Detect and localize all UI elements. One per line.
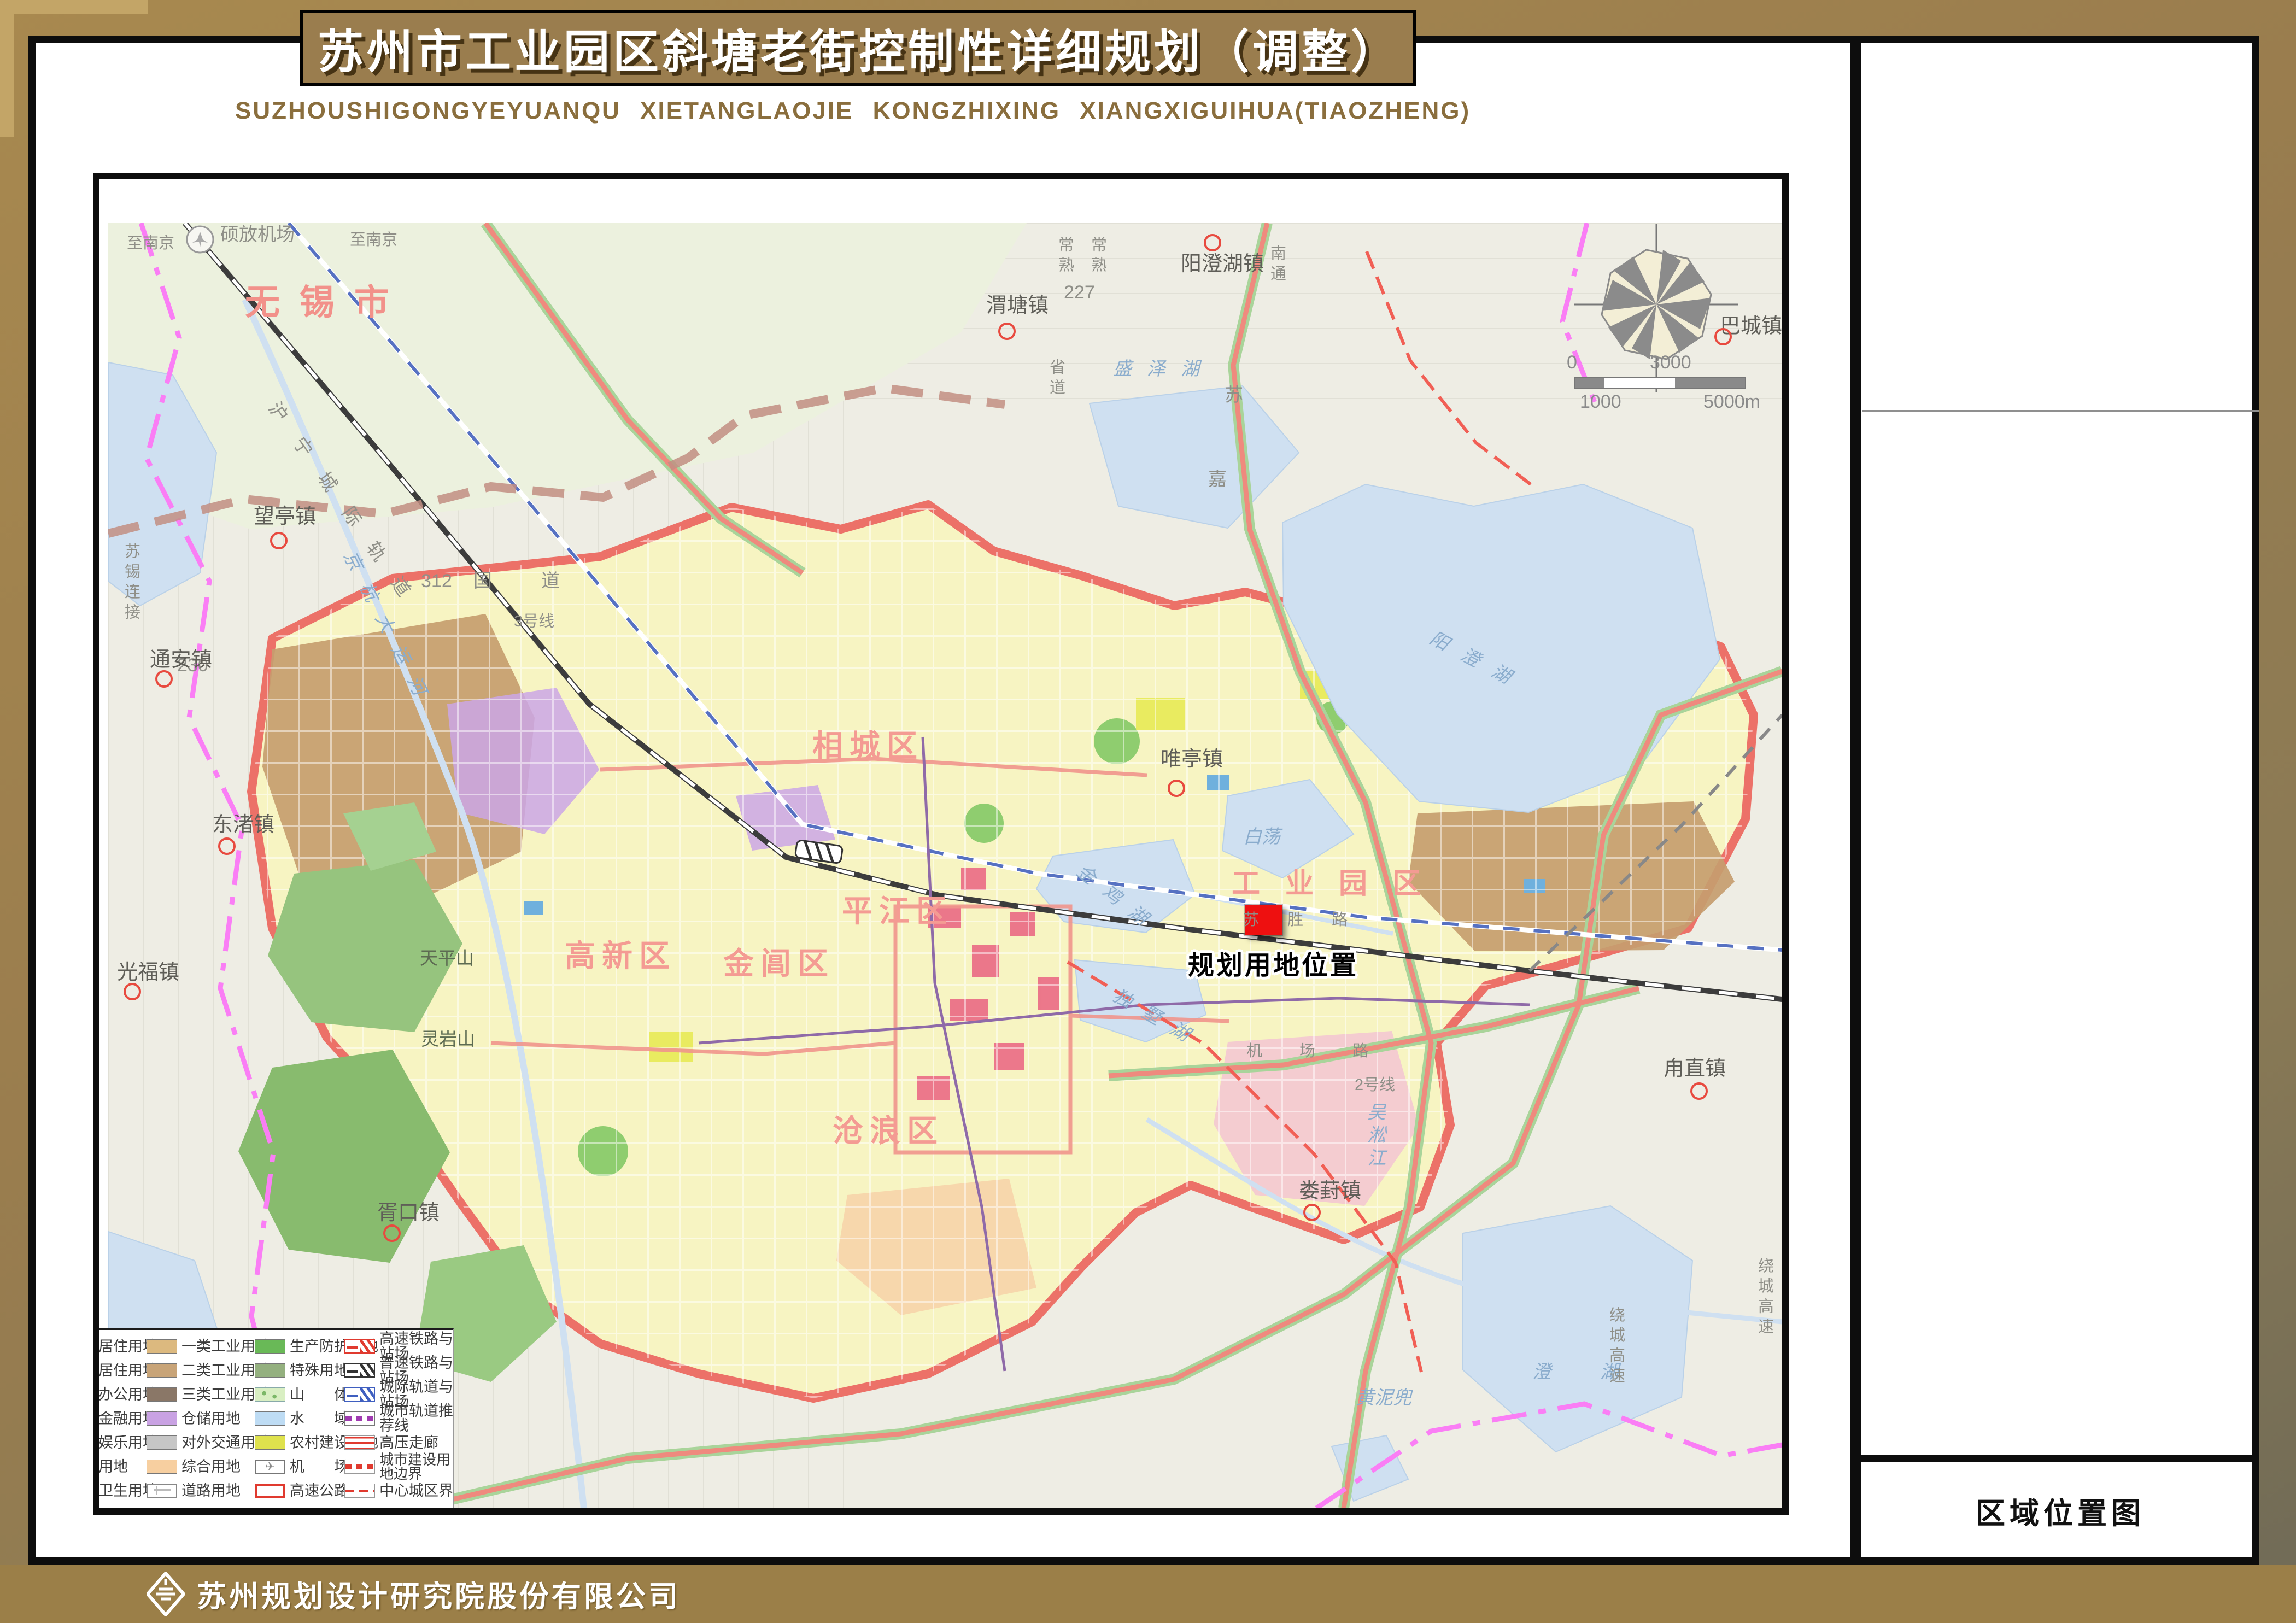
map-label: 沧浪区 [833,1115,944,1147]
legend-column: 高速铁路与站场普速铁路与站场城际轨道与站场城市轨道推荐线高压走廊城市建设用地边界… [344,1334,453,1503]
mountain-swatch-icon [255,1387,285,1402]
legend-item: 道路用地 [147,1479,270,1503]
map-label: 通安镇 [150,649,212,671]
legend-item: 一类工业用地 [147,1334,270,1358]
scale-bar [1574,377,1746,389]
map-label: 3号线 [514,613,554,630]
town-ring-icon [1204,234,1221,251]
rail-swatch-icon [344,1363,375,1378]
map-label: 阳澄湖镇 [1181,254,1264,276]
map-label: 嘉 [1208,470,1227,490]
legend-item: 对外交通用地 [147,1431,270,1455]
scale-label-1000: 1000 [1580,391,1621,413]
map-label: 227 [1064,283,1095,303]
airport-swatch-icon: ✈ [255,1460,285,1474]
legend-item: 城市建设用地边界 [344,1455,453,1479]
map-label: 吴淞江 [1364,1102,1384,1171]
map-label: 苏 胜 路 [1243,912,1360,928]
rail-swatch-icon [344,1339,375,1354]
company-logo-icon [147,1572,185,1616]
map-label: 高新区 [565,940,676,972]
town-ring-icon [1168,780,1185,797]
map-label: 望亭镇 [254,506,316,528]
town-ring-icon [1303,1204,1321,1221]
legend-item: 城市轨道推荐线 [344,1407,453,1431]
scale-label-3000: 3000 [1650,352,1691,373]
map-sheet: 规划用地位置 0 1000 3000 5000m 无锡市至南京至南京硕放机场沪宁… [93,173,1789,1515]
map-label: 甪直镇 [1664,1058,1726,1080]
map-label: 硕放机场 [220,225,295,245]
legend-column: 一类工业用地二类工业用地三类工业用地仓储用地对外交通用地综合用地道路用地 [147,1334,270,1503]
map-label: 盛泽湖 [1113,360,1215,379]
town-ring-icon [155,670,173,688]
legend-item: 二类工业用地 [147,1358,270,1382]
map-label: 无锡市 [245,284,409,321]
map-label: 渭塘镇 [986,295,1049,317]
map-label: 相城区 [812,730,924,763]
map-label: 白荡 [1243,828,1280,847]
legend-item: 综合用地 [147,1455,270,1479]
solid-swatch-icon [147,1339,177,1354]
town-ring-icon [124,983,141,1000]
solid-swatch-icon [255,1411,285,1426]
hv-swatch-icon [344,1435,375,1450]
map-label: 常熟 [1089,236,1105,277]
road-swatch-icon [147,1484,177,1498]
legend-item: 中心城区界 [344,1479,453,1503]
town-ring-icon [1690,1082,1708,1100]
right-panel-thick-rule [1861,1455,2259,1462]
town-ring-icon [1714,328,1732,345]
map-label: 绕城高速 [1756,1257,1772,1338]
map-label: 苏锡连接 [122,543,139,624]
page-title: 苏州市工业园区斜塘老街控制性详细规划（调整） [318,15,1400,81]
map-label: 唯亭镇 [1161,749,1223,771]
map-label: 至南京 [350,232,397,248]
map-label: 娄葑镇 [1299,1181,1361,1203]
map-label: 绕城高速 [1607,1306,1624,1387]
solid-swatch-icon [147,1411,177,1426]
center-swatch-icon [344,1484,375,1498]
map-legend: 居住用地居住用地办公用地金融用地娱乐用地用地卫生用地一类工业用地二类工业用地三类… [93,1328,454,1515]
map-label: 机 场 路 [1246,1043,1385,1059]
map-label: 312 [421,572,452,591]
map-label: 胥口镇 [377,1203,440,1224]
map-label: 南通 [1268,245,1285,285]
highway-swatch-icon [255,1484,285,1498]
town-ring-icon [998,323,1016,340]
title-band: 苏州市工业园区斜塘老街控制性详细规划（调整） [300,10,1416,86]
solid-swatch-icon [147,1387,177,1402]
right-panel-divider [1850,36,1861,1565]
metro-swatch-icon [344,1411,375,1426]
scale-label-5000: 5000m [1703,391,1760,413]
map-label: 金阊区 [723,948,835,980]
map-label: 东渚镇 [212,815,274,836]
region-map-section: 区域位置图 [1861,1462,2259,1559]
map-label: 国 道 [473,572,575,591]
solid-swatch-icon [147,1460,177,1474]
solid-swatch-icon [255,1435,285,1450]
map-label: 独墅湖 [1110,986,1205,1052]
company-name: 苏州规划设计研究院股份有限公司 [197,1572,681,1615]
map-label: 常熟 [1056,236,1073,277]
map-label: 苏 [1225,386,1243,406]
map-label: 阳澄湖 [1426,629,1528,695]
solid-swatch-icon [147,1435,177,1450]
frame-accent-top [0,0,148,14]
solid-swatch-icon [255,1363,285,1378]
map-label: 平江区 [842,895,953,928]
map-label: 黄泥兜 [1356,1388,1411,1408]
town-ring-icon [218,837,236,855]
frame-accent-left [0,0,14,137]
map-label: 灵岩山 [421,1030,475,1049]
map-label: 工业园区 [1232,869,1446,899]
map-label: 至南京 [127,235,174,251]
scale-label-0: 0 [1567,352,1577,373]
map-label: 金鸡湖 [1073,862,1162,938]
right-panel-thin-rule [1862,410,2259,412]
legend-item: 三类工业用地 [147,1382,270,1407]
legend-item: 仓储用地 [147,1407,270,1431]
company-bar: 苏州规划设计研究院股份有限公司 [0,1565,2296,1623]
solid-swatch-icon [255,1339,285,1354]
rail-swatch-icon [344,1387,375,1402]
bound-swatch-icon [344,1460,375,1474]
town-ring-icon [383,1224,401,1242]
page-subtitle-pinyin: SUZHOUSHIGONGYEYUANQU XIETANGLAOJIE KONG… [235,97,1875,125]
map-label: 光福镇 [117,962,179,984]
site-marker-label: 规划用地位置 [1188,944,1358,982]
solid-swatch-icon [147,1363,177,1378]
map-label-layer: 规划用地位置 0 1000 3000 5000m 无锡市至南京至南京硕放机场沪宁… [108,223,1782,1508]
map-label: 2号线 [1355,1077,1395,1093]
map-label: 天平山 [420,949,474,968]
town-ring-icon [270,532,288,549]
map-label: 省道 [1047,359,1064,399]
region-map-title: 区域位置图 [1976,1489,2145,1532]
